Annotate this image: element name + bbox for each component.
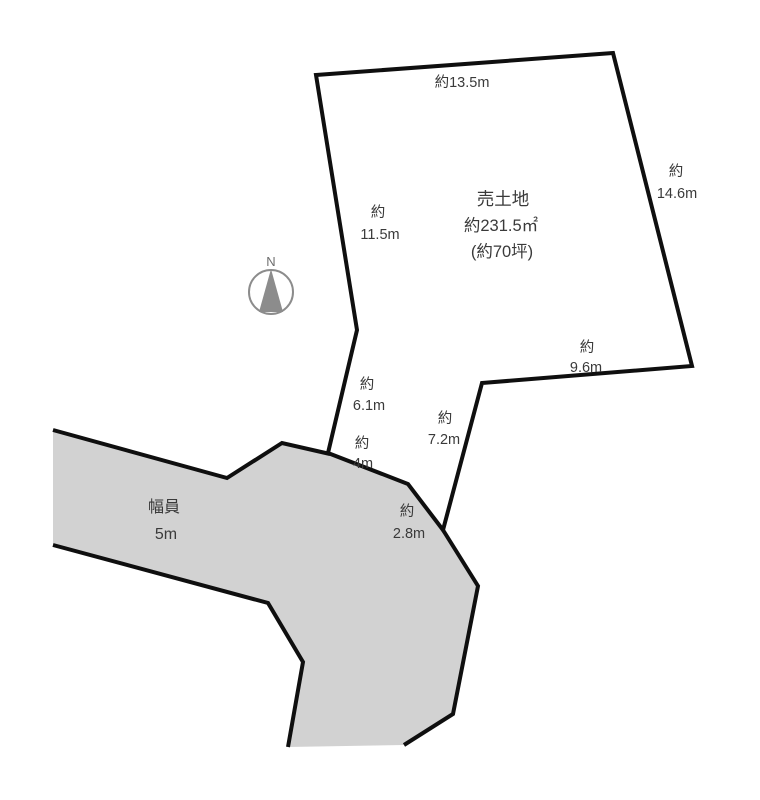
dimension-lower-left-edge: 約 6.1m [353,376,385,414]
compass-north-label: N [266,254,275,269]
dimension-lower-right-prefix: 約 [580,339,595,356]
dimension-appendix-right-value: 7.2m [428,432,460,448]
dimension-appendix-lower-value: 2.8m [393,526,425,542]
parcel-area-sqm: 約231.5㎡ [464,216,539,235]
dimension-upper-left-value: 11.5m [360,227,399,243]
dimension-right-edge-prefix: 約 [669,163,684,180]
road-width-value: 5m [155,526,177,543]
dimension-appendix-lower-prefix: 約 [400,503,415,520]
dimension-lower-right-value: 9.6m [570,360,602,376]
land-plot-diagram: N 売土地 約231.5㎡ (約70坪) 約13.5m 約 14.6m 約 11… [0,0,760,800]
dimension-upper-left-edge: 約 11.5m [360,204,399,243]
parcel-label-block: 売土地 約231.5㎡ (約70坪) [464,189,539,261]
dimension-right-edge: 約 14.6m [657,163,697,202]
dimension-appendix-upper-edge: 約 4m [353,435,373,472]
dimension-right-edge-value: 14.6m [657,186,697,202]
compass: N [249,254,293,314]
parcel-area-tsubo: (約70坪) [471,242,533,261]
dimension-appendix-right-prefix: 約 [438,410,453,427]
north-arrow-icon [259,269,283,312]
dimension-upper-left-prefix: 約 [371,204,386,221]
road-shape [53,430,478,747]
parcel-title: 売土地 [477,189,530,209]
road-width-label: 幅員 [148,498,180,516]
dimension-lower-left-value: 6.1m [353,398,385,414]
dimension-lower-right-edge: 約 9.6m [570,339,602,376]
dimension-appendix-upper-value: 4m [353,456,373,472]
dimension-appendix-right-edge: 約 7.2m [428,410,460,448]
dimension-appendix-upper-prefix: 約 [355,435,370,452]
plot-diagram-canvas: N 売土地 約231.5㎡ (約70坪) 約13.5m 約 14.6m 約 11… [0,0,760,800]
dimension-top-edge: 約13.5m [435,74,490,91]
dimension-lower-left-prefix: 約 [360,376,375,393]
